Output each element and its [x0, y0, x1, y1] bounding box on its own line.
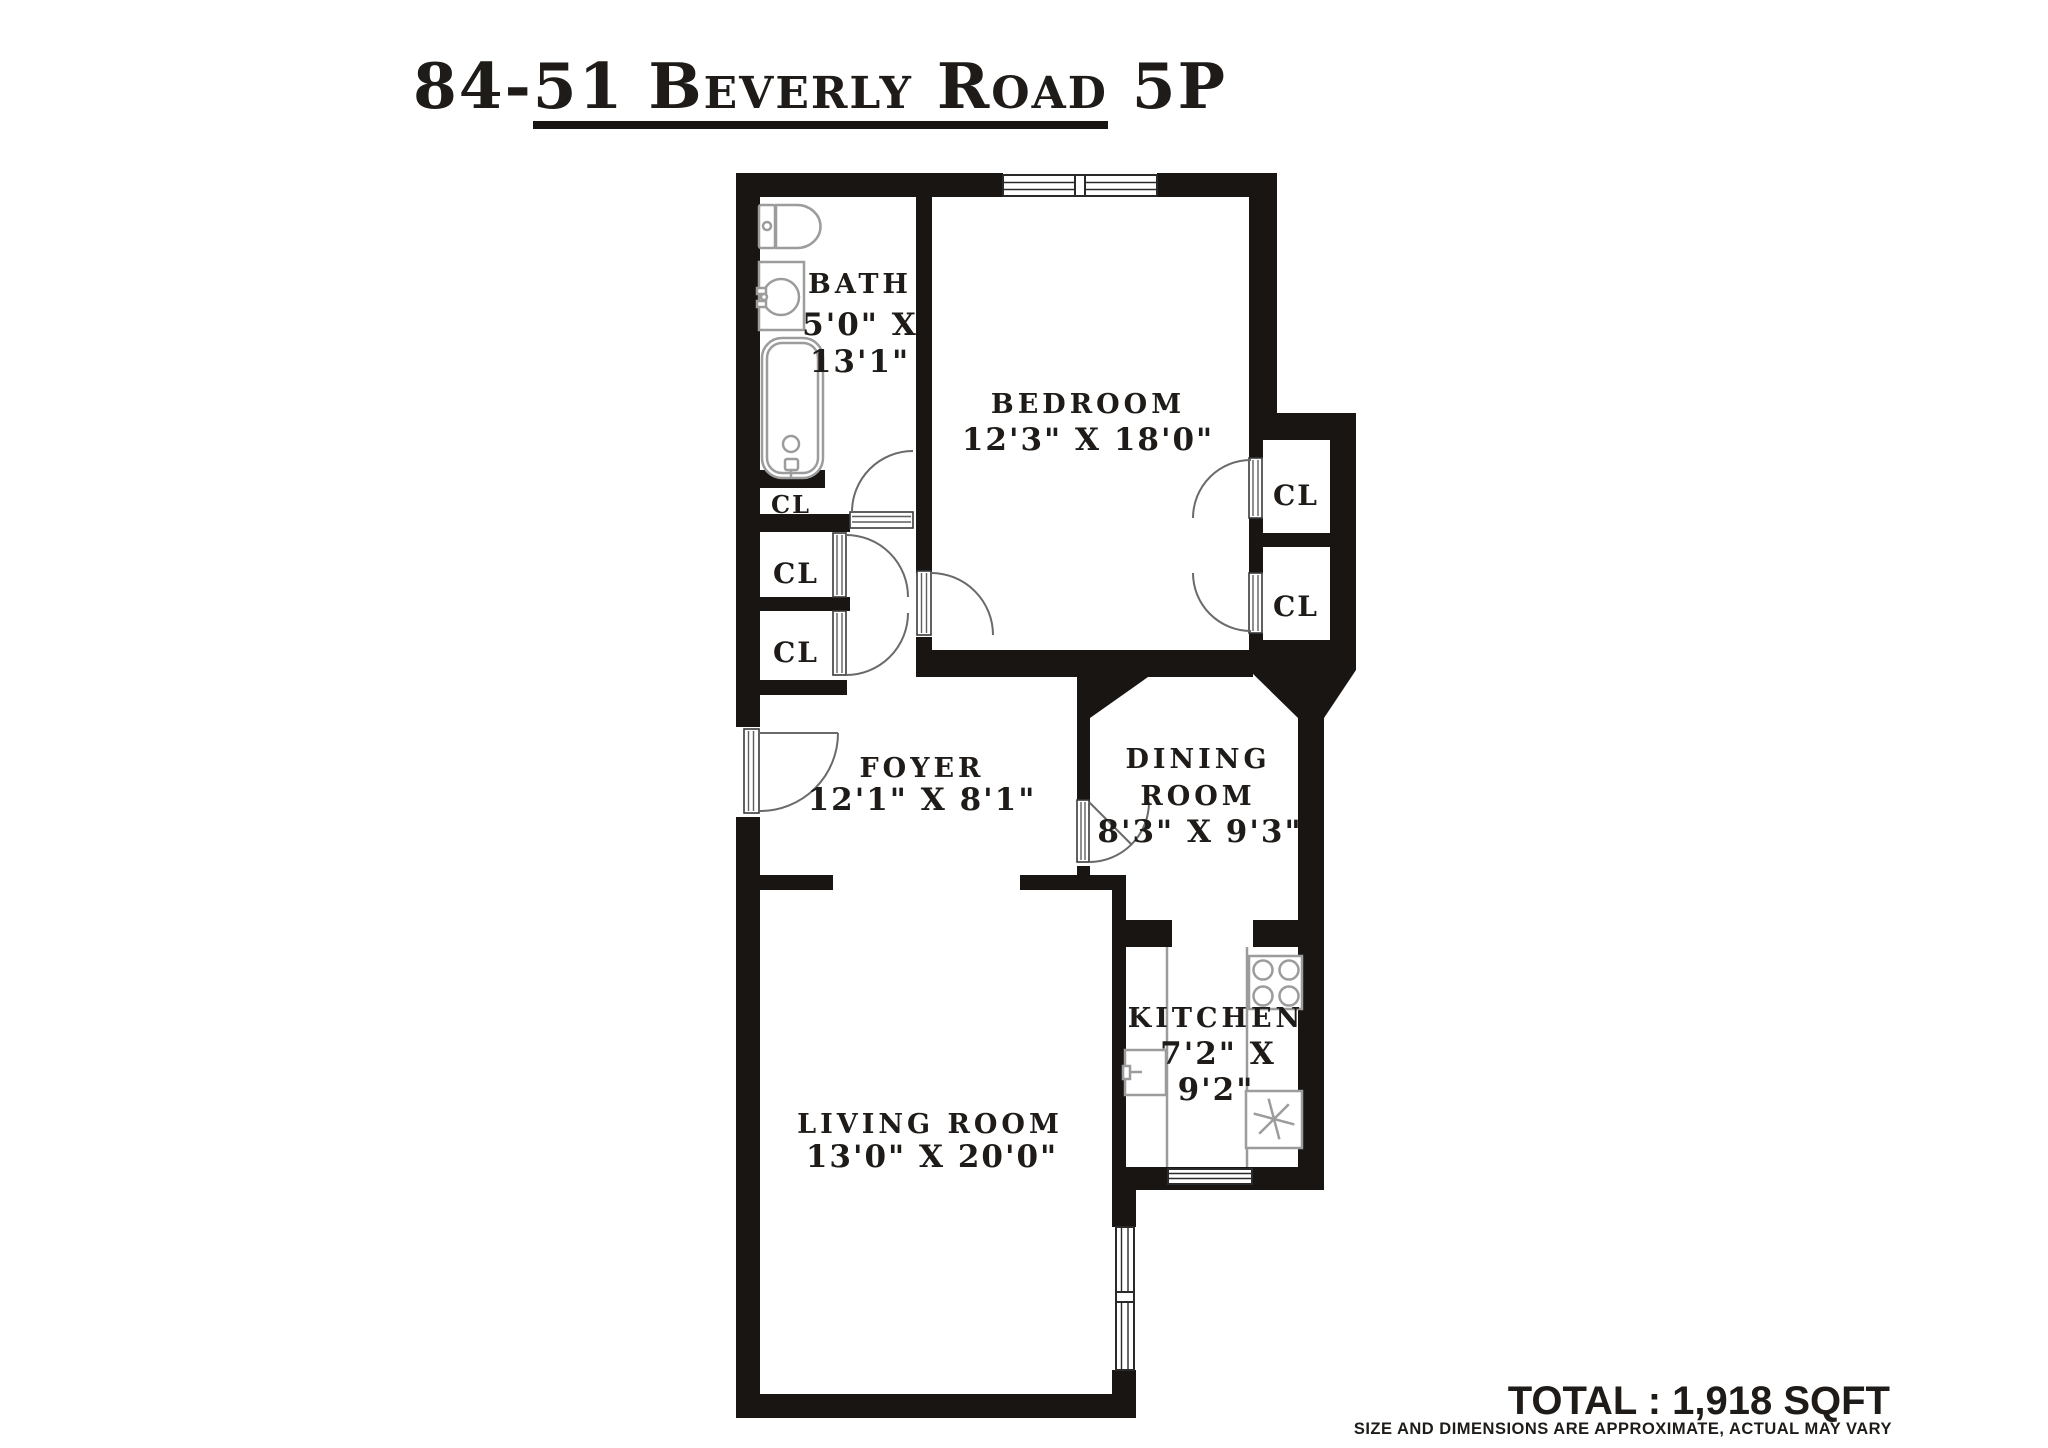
- dining-label-2: ROOM: [1140, 781, 1255, 812]
- title-underline: [533, 121, 1108, 129]
- wall-segment: [736, 680, 847, 695]
- refrigerator-icon: [1246, 1091, 1302, 1148]
- wall-segment: [1112, 1190, 1136, 1227]
- dining-label-1: DINING: [1125, 744, 1270, 775]
- bedroom-closet1-door: [1193, 458, 1262, 518]
- total-sqft: TOTAL : 1,918 SQFT: [1508, 1379, 1890, 1423]
- wall-segment: [1249, 197, 1277, 413]
- foyer-label: FOYER: [860, 753, 985, 784]
- wall-segment: [758, 875, 833, 890]
- wall-segment: [1249, 440, 1263, 458]
- room-labels: BATH 5'0" X 13'1" BEDROOM 12'3" X 18'0" …: [771, 269, 1319, 1175]
- bath-door: [850, 451, 913, 528]
- wall-segment: [1263, 533, 1330, 547]
- wall-segment: [736, 173, 760, 727]
- dining-dims: 8'3" X 9'3": [1097, 814, 1302, 850]
- wall-segment: [1249, 518, 1263, 573]
- bath-dims-2: 13'1": [810, 344, 910, 380]
- wall-segment: [736, 817, 760, 1418]
- bath-label: BATH: [808, 269, 912, 300]
- bedroom-closet2-door: [1193, 573, 1262, 633]
- wall-chamfer: [1090, 677, 1148, 718]
- kitchen-label: KITCHEN: [1128, 1003, 1304, 1034]
- bedroom-dims: 12'3" X 18'0": [962, 422, 1214, 458]
- wall-segment: [758, 597, 850, 611]
- wall-segment: [916, 197, 932, 573]
- living-room-label: LIVING ROOM: [797, 1109, 1063, 1140]
- kitchen-dims-2: 9'2": [1178, 1072, 1255, 1108]
- wall-chamfer: [1249, 670, 1356, 718]
- bedroom-closet2-label: CL: [1273, 590, 1319, 623]
- bedroom-closet1-label: CL: [1273, 479, 1319, 512]
- wall-segment: [1020, 875, 1113, 890]
- floor-plan-canvas: 84-51 Beverly Road 5P: [0, 0, 2048, 1448]
- living-room-dims: 13'0" X 20'0": [806, 1139, 1058, 1175]
- closet-c-door: [833, 611, 908, 675]
- wall-segment: [1249, 640, 1356, 670]
- stove-icon: [1249, 956, 1302, 1009]
- wall-segment: [1330, 413, 1356, 670]
- wall-segment: [736, 173, 1003, 197]
- wall-segment: [1249, 633, 1263, 650]
- bath-sink-icon: [757, 262, 804, 330]
- bedroom-label: BEDROOM: [991, 389, 1185, 420]
- closet-c-label: CL: [773, 636, 819, 669]
- living-room-window: [1116, 1227, 1134, 1370]
- closet-a-label: CL: [771, 490, 811, 519]
- closet-b-label: CL: [773, 557, 819, 590]
- closet-b-door: [833, 533, 908, 597]
- kitchen-dims-1: 7'2" X: [1160, 1036, 1276, 1072]
- page-title: 84-51 Beverly Road 5P: [413, 49, 1227, 123]
- bath-dims-1: 5'0" X: [802, 307, 918, 343]
- bedroom-door: [917, 571, 993, 635]
- wall-segment: [1112, 920, 1172, 947]
- kitchen-window: [1168, 1169, 1252, 1184]
- bedroom-window: [1003, 175, 1157, 196]
- toilet-icon: [759, 205, 821, 248]
- foyer-dims: 12'1" X 8'1": [808, 782, 1037, 818]
- footer: TOTAL : 1,918 SQFT SIZE AND DIMENSIONS A…: [1354, 1379, 1892, 1438]
- wall-segment: [1077, 670, 1090, 802]
- wall-segment: [1157, 173, 1277, 197]
- wall-segment: [736, 1394, 1136, 1418]
- disclaimer: SIZE AND DIMENSIONS ARE APPROXIMATE, ACT…: [1354, 1420, 1892, 1438]
